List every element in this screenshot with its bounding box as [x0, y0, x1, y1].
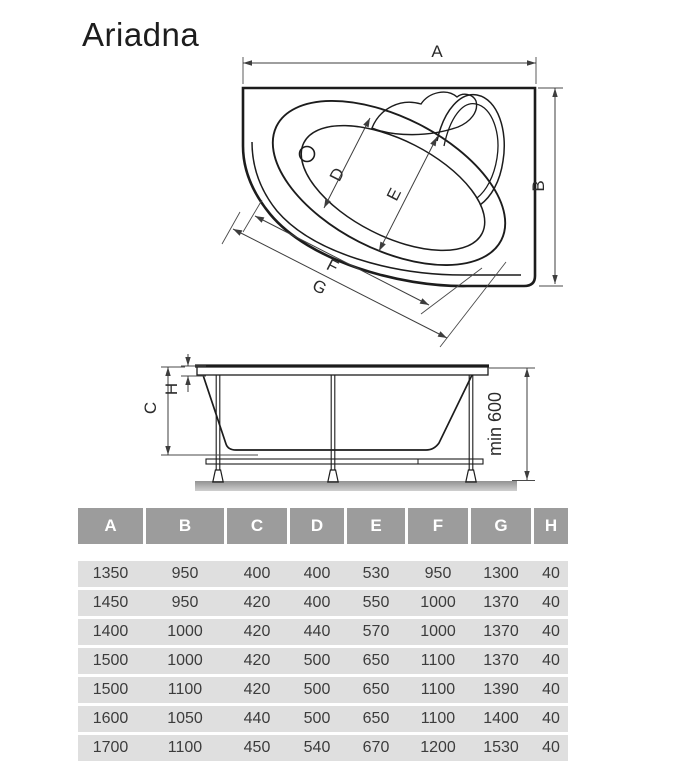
table-cell: 440 — [227, 706, 287, 732]
table-cell: 1100 — [408, 677, 468, 703]
table-cell: 1500 — [78, 677, 143, 703]
dim-label-h: H — [162, 383, 181, 395]
table-cell: 1530 — [471, 735, 531, 761]
table-cell: 1000 — [408, 619, 468, 645]
table-cell: 40 — [534, 561, 568, 587]
table-cell: 1000 — [146, 648, 224, 674]
table-cell: 1500 — [78, 648, 143, 674]
table-cell: 1200 — [408, 735, 468, 761]
table-cell: 500 — [290, 648, 344, 674]
table-cell: 420 — [227, 619, 287, 645]
table-cell: 540 — [290, 735, 344, 761]
dimension-a: A — [243, 42, 536, 84]
spec-table-body: 1350950400400530950130040145095042040055… — [78, 561, 568, 761]
table-cell: 420 — [227, 648, 287, 674]
table-cell: 950 — [146, 590, 224, 616]
table-cell: 500 — [290, 706, 344, 732]
table-cell: 1390 — [471, 677, 531, 703]
table-cell: 650 — [347, 677, 405, 703]
table-row: 14509504204005501000137040 — [78, 590, 568, 616]
dim-label-b: B — [529, 180, 548, 191]
table-cell: 1400 — [78, 619, 143, 645]
table-cell: 400 — [290, 561, 344, 587]
table-cell: 570 — [347, 619, 405, 645]
table-cell: 530 — [347, 561, 405, 587]
table-cell: 650 — [347, 648, 405, 674]
dim-label-f: F — [324, 255, 342, 277]
table-cell: 1450 — [78, 590, 143, 616]
tub-inner-rim-curve — [252, 142, 521, 275]
dimension-e: E — [379, 137, 437, 251]
column-header-g: G — [471, 508, 531, 544]
column-header-h: H — [534, 508, 568, 544]
table-cell: 950 — [408, 561, 468, 587]
column-header-a: A — [78, 508, 143, 544]
table-cell: 670 — [347, 735, 405, 761]
dimension-g: G — [222, 212, 506, 347]
table-cell: 550 — [347, 590, 405, 616]
table-cell: 1050 — [146, 706, 224, 732]
table-cell: 1100 — [408, 706, 468, 732]
foot-middle — [328, 470, 338, 482]
dim-label-e: E — [383, 185, 405, 204]
table-cell: 1100 — [146, 677, 224, 703]
table-cell: 1370 — [471, 648, 531, 674]
foot-left — [213, 470, 223, 482]
table-cell: 420 — [227, 590, 287, 616]
frame-legs — [216, 375, 473, 470]
table-cell: 1350 — [78, 561, 143, 587]
table-row: 160010504405006501100140040 — [78, 706, 568, 732]
table-cell: 650 — [347, 706, 405, 732]
column-header-f: F — [408, 508, 468, 544]
table-cell: 40 — [534, 706, 568, 732]
top-view-drawing: A B D E F — [222, 42, 563, 347]
table-cell: 1100 — [408, 648, 468, 674]
table-row: 140010004204405701000137040 — [78, 619, 568, 645]
table-cell: 40 — [534, 590, 568, 616]
dim-label-min-height: min 600 — [485, 392, 505, 456]
column-header-c: C — [227, 508, 287, 544]
table-row: 170011004505406701200153040 — [78, 735, 568, 761]
spec-table-header: A B C D E F G H — [78, 508, 568, 544]
dim-label-g: G — [309, 276, 329, 299]
table-cell: 1600 — [78, 706, 143, 732]
dimension-d: D — [324, 118, 370, 208]
table-cell: 440 — [290, 619, 344, 645]
table-cell: 1000 — [408, 590, 468, 616]
table-cell: 40 — [534, 619, 568, 645]
table-row: 150011004205006501100139040 — [78, 677, 568, 703]
technical-drawing: A B D E F — [0, 0, 677, 500]
column-header-d: D — [290, 508, 344, 544]
table-cell: 950 — [146, 561, 224, 587]
table-cell: 450 — [227, 735, 287, 761]
table-cell: 420 — [227, 677, 287, 703]
dimension-min-height: min 600 — [485, 368, 535, 481]
table-cell: 400 — [227, 561, 287, 587]
dimension-f: F — [243, 200, 482, 314]
table-cell: 1370 — [471, 590, 531, 616]
table-cell: 40 — [534, 735, 568, 761]
table-cell: 400 — [290, 590, 344, 616]
support-rail — [206, 459, 483, 464]
table-cell: 40 — [534, 648, 568, 674]
table-cell: 1300 — [471, 561, 531, 587]
dim-label-a: A — [431, 42, 443, 61]
spec-table: A B C D E F G H 135095040040053095013004… — [78, 508, 568, 764]
tub-profile — [203, 375, 472, 450]
table-cell: 40 — [534, 677, 568, 703]
table-cell: 500 — [290, 677, 344, 703]
side-view-drawing: C H min 600 — [141, 354, 535, 491]
dim-label-c: C — [141, 402, 160, 414]
table-row: 1350950400400530950130040 — [78, 561, 568, 587]
table-cell: 1100 — [146, 735, 224, 761]
table-cell: 1000 — [146, 619, 224, 645]
table-cell: 1400 — [471, 706, 531, 732]
dimension-c: C — [141, 367, 258, 455]
table-cell: 1700 — [78, 735, 143, 761]
column-header-b: B — [146, 508, 224, 544]
foot-right — [466, 470, 476, 482]
table-cell: 1370 — [471, 619, 531, 645]
table-row: 150010004205006501100137040 — [78, 648, 568, 674]
column-header-e: E — [347, 508, 405, 544]
